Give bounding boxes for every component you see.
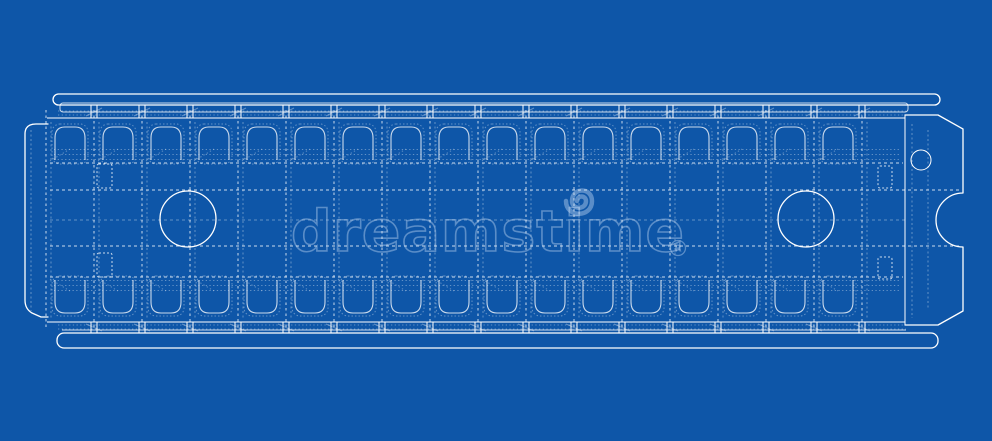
registered-trademark-letter: R: [674, 244, 682, 255]
blueprint-stock-image: dreamstime R: [0, 0, 992, 441]
small-hole-circle: [911, 150, 931, 170]
left-end-plate: [25, 124, 48, 317]
watermark-text: dreamstime: [291, 199, 685, 265]
right-hole-circle: [778, 191, 834, 247]
pocket-left-bottom: [97, 253, 112, 277]
pocket-right-bottom: [878, 257, 892, 279]
right-end-plate: [905, 115, 963, 325]
left-hole-circle: [160, 191, 216, 247]
pocket-right-top: [878, 166, 892, 188]
watermark: dreamstime R: [291, 191, 686, 266]
wireframe-rail-drawing: dreamstime R: [0, 0, 992, 441]
bottom-bar: [57, 333, 938, 348]
